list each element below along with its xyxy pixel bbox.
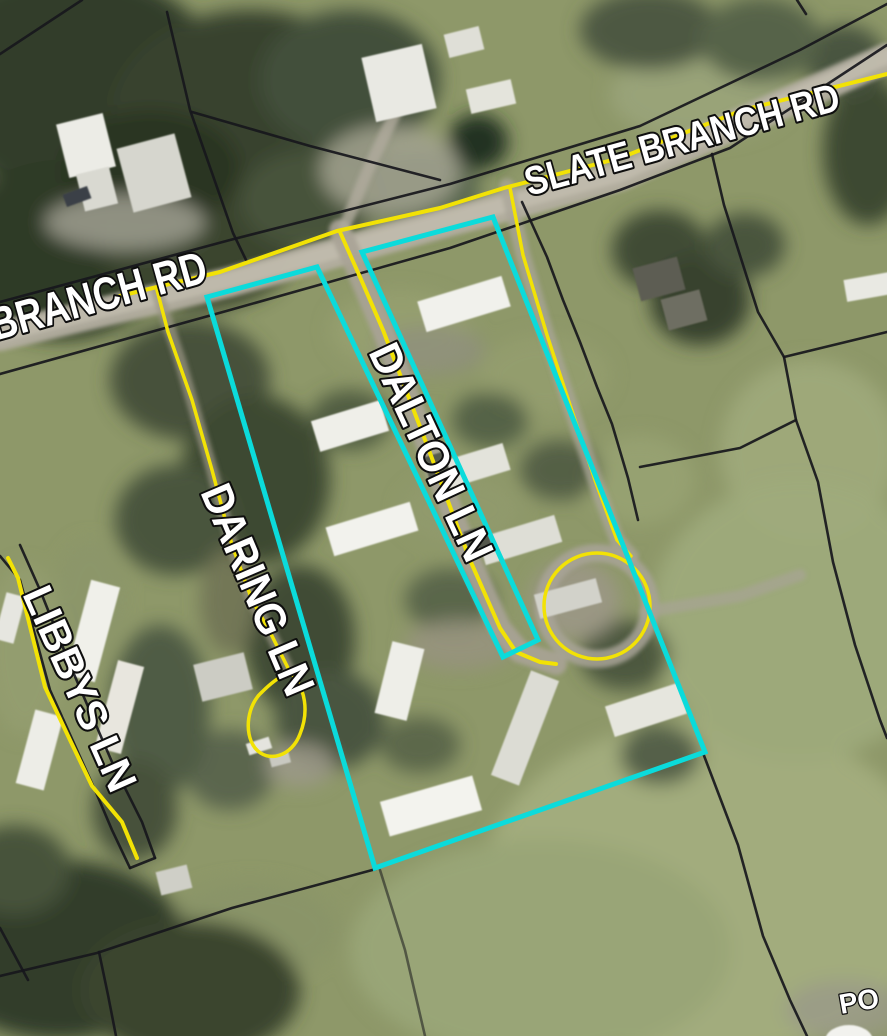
vegetation-blob-38 [452,392,528,448]
vegetation-blob-45 [380,717,460,773]
parcel-map[interactable]: SLATE BRANCH RD TE BRANCH RD DALTON LN D… [0,0,887,1036]
aerial-parcel-map-canvas: SLATE BRANCH RD TE BRANCH RD DALTON LN D… [0,0,887,1036]
vegetation-blob-47 [320,125,460,215]
